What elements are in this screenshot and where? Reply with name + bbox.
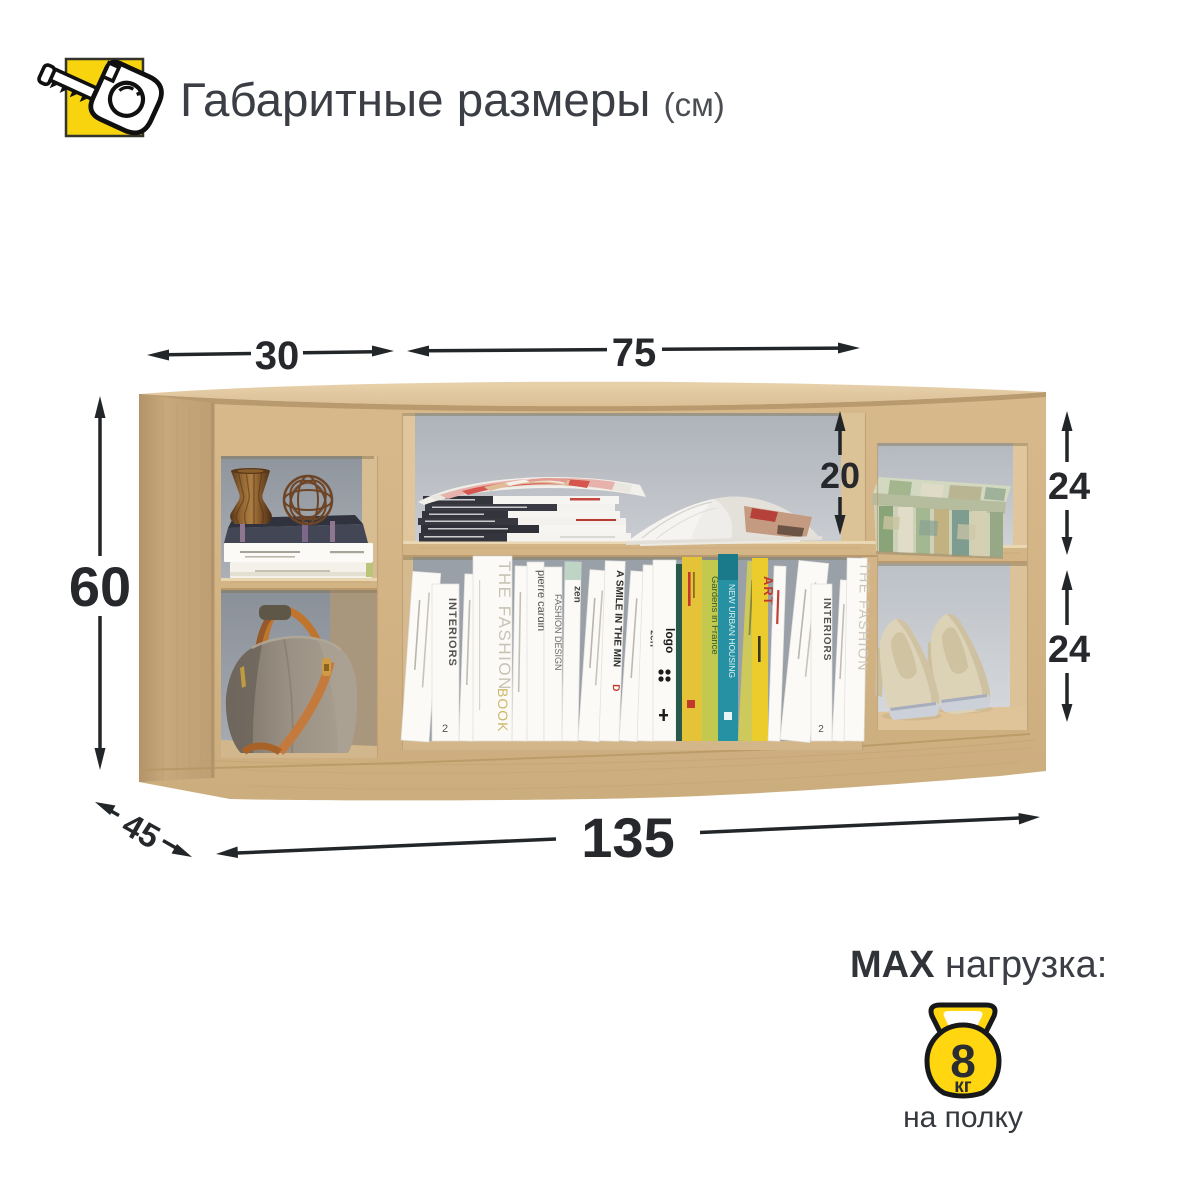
svg-text:на полку: на полку [903, 1101, 1023, 1134]
svg-text:30: 30 [255, 334, 300, 378]
svg-text:zen: zen [571, 586, 582, 603]
svg-text:MAX нагрузка:: MAX нагрузка: [850, 944, 1107, 986]
svg-text:20: 20 [820, 455, 860, 496]
svg-text:кг: кг [954, 1076, 972, 1097]
svg-text:NEW URBAN HOUSING: NEW URBAN HOUSING [727, 584, 737, 678]
svg-text:135: 135 [581, 806, 674, 869]
svg-text:logo: logo [663, 628, 677, 653]
svg-text:75: 75 [612, 331, 657, 375]
svg-text:THE FASHION: THE FASHION [855, 562, 873, 672]
svg-text:60: 60 [69, 555, 131, 618]
svg-text:BOOK: BOOK [495, 688, 511, 732]
svg-text:INTERIORS: INTERIORS [446, 598, 458, 667]
svg-text:D: D [610, 684, 621, 692]
svg-text:FASHION DESIGN: FASHION DESIGN [553, 594, 563, 671]
svg-text:24: 24 [1048, 466, 1090, 508]
svg-text:INTERIORS: INTERIORS [821, 598, 832, 661]
svg-text:Габаритные размеры (см): Габаритные размеры (см) [180, 74, 725, 127]
svg-text:2: 2 [818, 724, 824, 735]
svg-text:2: 2 [442, 723, 448, 735]
svg-text:24: 24 [1048, 629, 1090, 671]
svg-text:THE FASHION: THE FASHION [495, 561, 514, 691]
